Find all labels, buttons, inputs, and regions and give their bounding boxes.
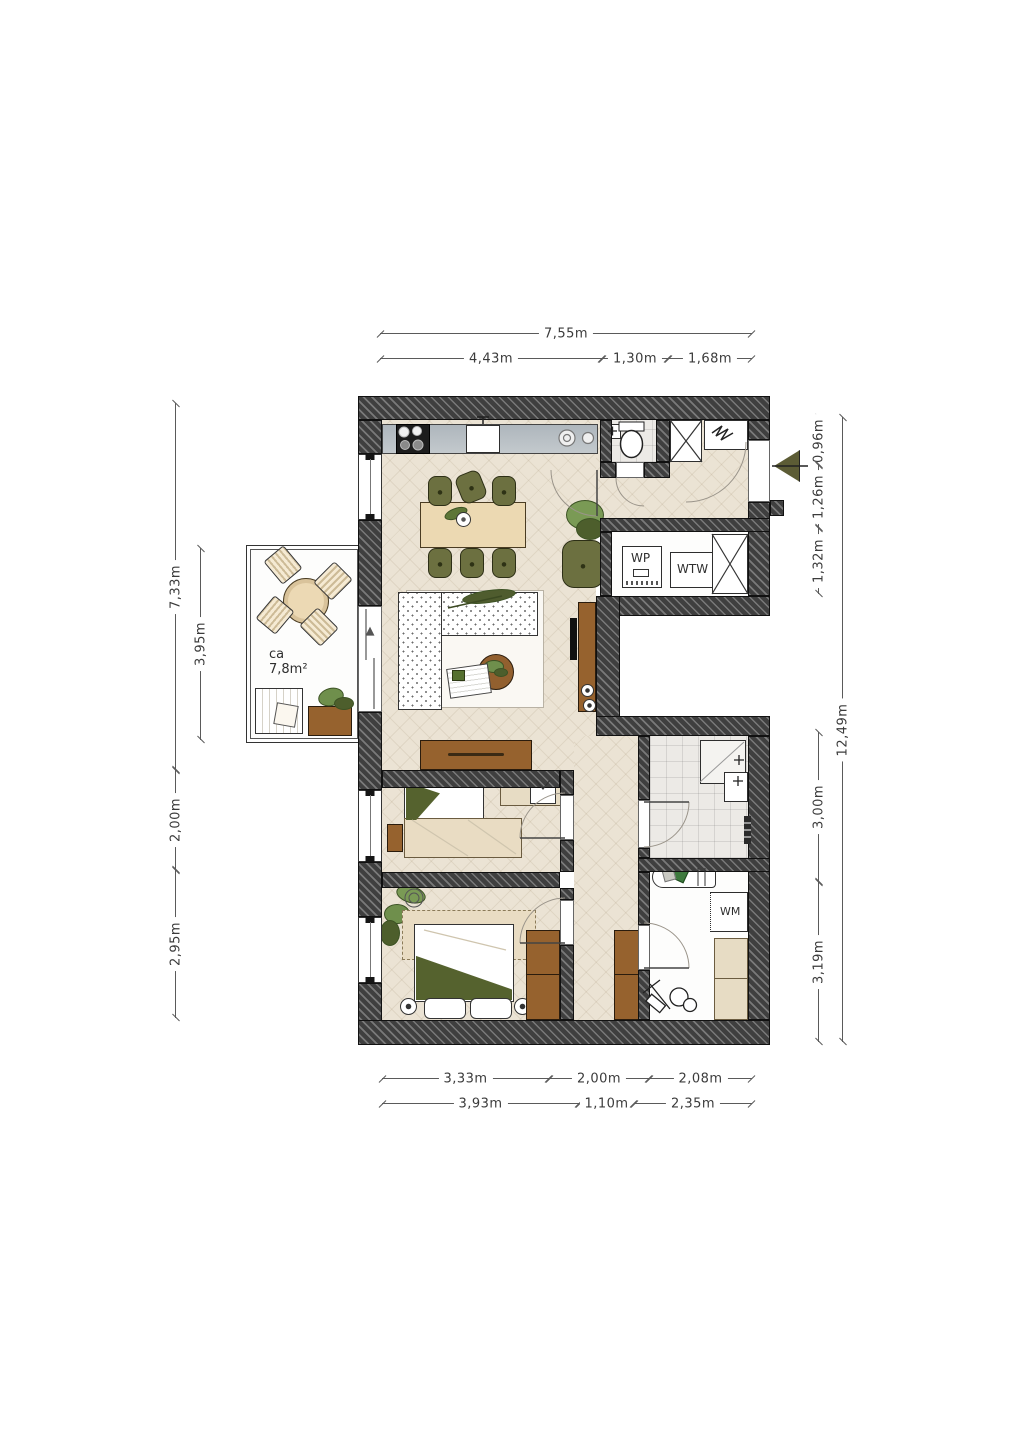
dimension-label: 2,00m [169,793,184,847]
door-swing-arcs [520,442,746,968]
dimension-left-1: 7,33m [175,403,176,770]
dimension-right-u3: 1,32m [818,528,819,594]
kitchen-tap-icon [477,417,489,424]
dimension-label: 4,43m [464,352,518,367]
dimension-label: 1,10m [579,1097,633,1112]
sofa-branch-stem [448,596,502,608]
plan-linework [0,0,1018,1440]
dimension-balcony-depth: 3,95m [200,548,201,740]
dimension-label: 7,55m [539,327,593,342]
dimension-right-u2: 1,26m [818,465,819,528]
sliding-door-lines [366,609,374,709]
shirt-collar-line [536,780,550,789]
dimension-label: 3,33m [438,1072,492,1087]
desk-chair-icon [643,980,697,1013]
dimension-label: 2,08m [673,1072,727,1087]
dimension-right-total: 12,49m [842,417,843,1042]
ironing-board-end-lines [698,868,705,886]
dimension-label: 1,26m [812,469,827,523]
dimension-label: 3,93m [453,1097,507,1112]
duvet-fold-lines [412,820,516,950]
toilet-icon [619,422,644,458]
dimension-top-seg2: 1,30m [602,358,668,359]
dimension-bottom-a3: 2,08m [649,1078,752,1079]
dimension-right-u1: 0,96m [818,417,819,465]
dimension-bottom-a2: 2,00m [549,1078,649,1079]
dimension-bottom-b1: 3,93m [382,1103,579,1104]
dimension-top-seg3: 1,68m [668,358,752,359]
dimension-label: 1,32m [812,534,827,588]
dimension-right-l1: 3,00m [818,732,819,882]
dimension-label: 3,19m [812,935,827,989]
meter-zigzag-icon [712,426,733,440]
dimension-left-2: 2,00m [175,770,176,870]
dimension-label: 3,95m [194,617,209,671]
shaft-x-marks [670,420,748,594]
dimension-label: 0,96m [812,414,827,468]
floor-plan: ca 7,8m² WP WTW [0,0,1018,1440]
radiator-icon [744,816,751,844]
faucet-cross-icons [608,427,744,787]
dimension-right-l2: 3,19m [818,882,819,1042]
kettle-icons [559,430,594,446]
dimension-label: 2,35m [666,1097,720,1112]
dimension-bottom-b2: 1,10m [579,1103,634,1104]
dimension-label: 3,00m [812,780,827,834]
dimension-label: 12,49m [836,698,851,761]
dimension-top-seg1: 4,43m [380,358,602,359]
bedroom-plant-spiral [405,889,423,907]
dimension-label: 1,68m [683,352,737,367]
stove-burners [399,427,423,451]
dimension-bottom-a1: 3,33m [382,1078,549,1079]
dimension-bottom-b3: 2,35m [634,1103,752,1104]
dimension-label: 1,30m [608,352,662,367]
door-leaves [520,470,689,968]
dimension-label: 7,33m [169,559,184,613]
dimension-left-3: 2,95m [175,870,176,1018]
dimension-top-total: 7,55m [380,333,752,334]
dimension-label: 2,00m [572,1072,626,1087]
dimension-label: 2,95m [169,917,184,971]
